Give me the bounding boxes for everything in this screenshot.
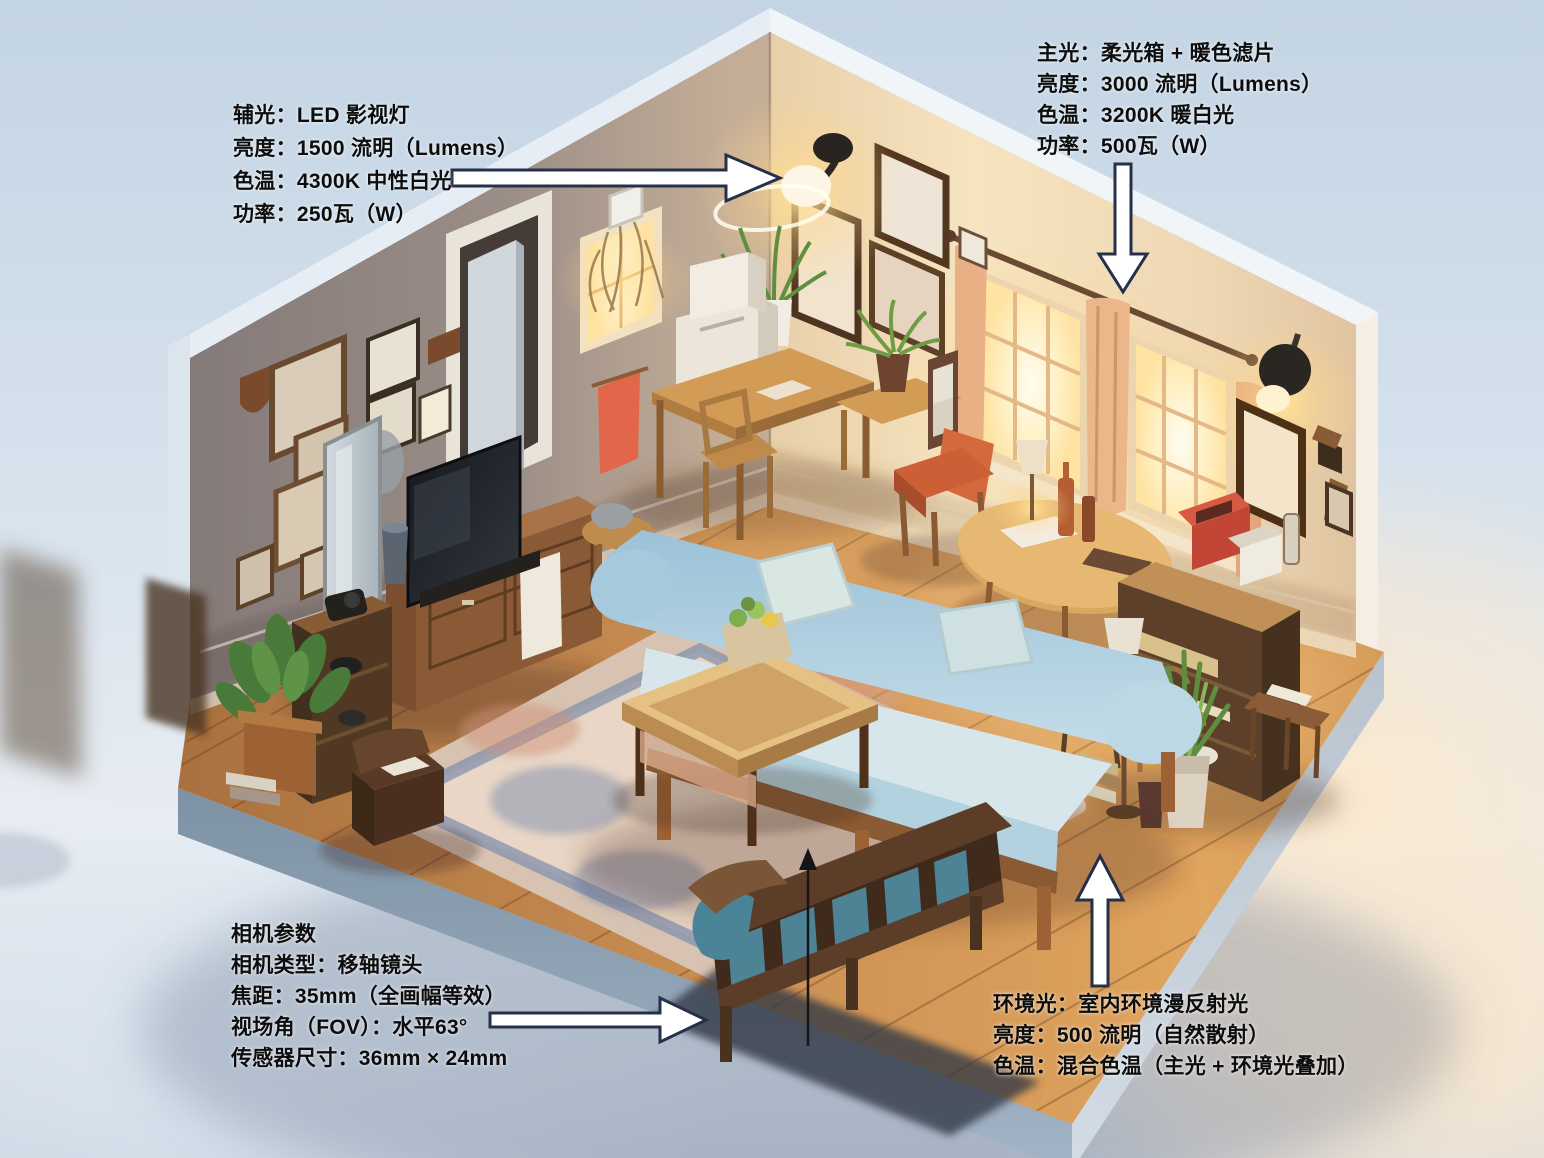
aux-light-line: 色温：4300K 中性白光 bbox=[233, 165, 518, 198]
camera-line: 相机参数 bbox=[231, 919, 507, 950]
towel bbox=[598, 372, 640, 474]
aux-light-line: 辅光：LED 影视灯 bbox=[233, 99, 518, 132]
main-light-line: 功率：500瓦（W） bbox=[1037, 131, 1322, 162]
camera-line: 焦距：35mm（全画幅等效） bbox=[231, 981, 507, 1012]
aux-light-line: 亮度：1500 流明（Lumens） bbox=[233, 132, 518, 165]
shelf-bottle bbox=[1284, 514, 1299, 564]
camera-line: 视场角（FOV）：水平63° bbox=[231, 1012, 507, 1043]
dark-console-bokeh bbox=[146, 578, 206, 736]
annotated-room-diorama: 辅光：LED 影视灯 亮度：1500 流明（Lumens） 色温：4300K 中… bbox=[0, 0, 1544, 1158]
ambient-light-line: 环境光：室内环境漫反射光 bbox=[993, 989, 1359, 1020]
annotation-main-light: 主光：柔光箱 + 暖色滤片 亮度：3000 流明（Lumens） 色温：3200… bbox=[1037, 38, 1322, 162]
main-light-line: 亮度：3000 流明（Lumens） bbox=[1037, 69, 1322, 100]
camera-line: 传感器尺寸：36mm × 24mm bbox=[231, 1043, 507, 1074]
annotation-aux-light: 辅光：LED 影视灯 亮度：1500 流明（Lumens） 色温：4300K 中… bbox=[233, 99, 518, 231]
main-light-line: 色温：3200K 暖白光 bbox=[1037, 100, 1322, 131]
trash-bin bbox=[382, 523, 408, 584]
camera-line: 相机类型：移轴镜头 bbox=[231, 950, 507, 981]
annotation-camera: 相机参数 相机类型：移轴镜头 焦距：35mm（全画幅等效） 视场角（FOV）：水… bbox=[231, 919, 507, 1074]
ambient-light-line: 色温：混合色温（主光 + 环境光叠加） bbox=[993, 1051, 1359, 1082]
aux-light-line: 功率：250瓦（W） bbox=[233, 198, 518, 231]
sofa-pillow bbox=[938, 600, 1032, 674]
annotation-ambient-light: 环境光：室内环境漫反射光 亮度：500 流明（自然散射） 色温：混合色温（主光 … bbox=[993, 989, 1359, 1082]
ambient-light-line: 亮度：500 流明（自然散射） bbox=[993, 1020, 1359, 1051]
main-light-line: 主光：柔光箱 + 暖色滤片 bbox=[1037, 38, 1322, 69]
